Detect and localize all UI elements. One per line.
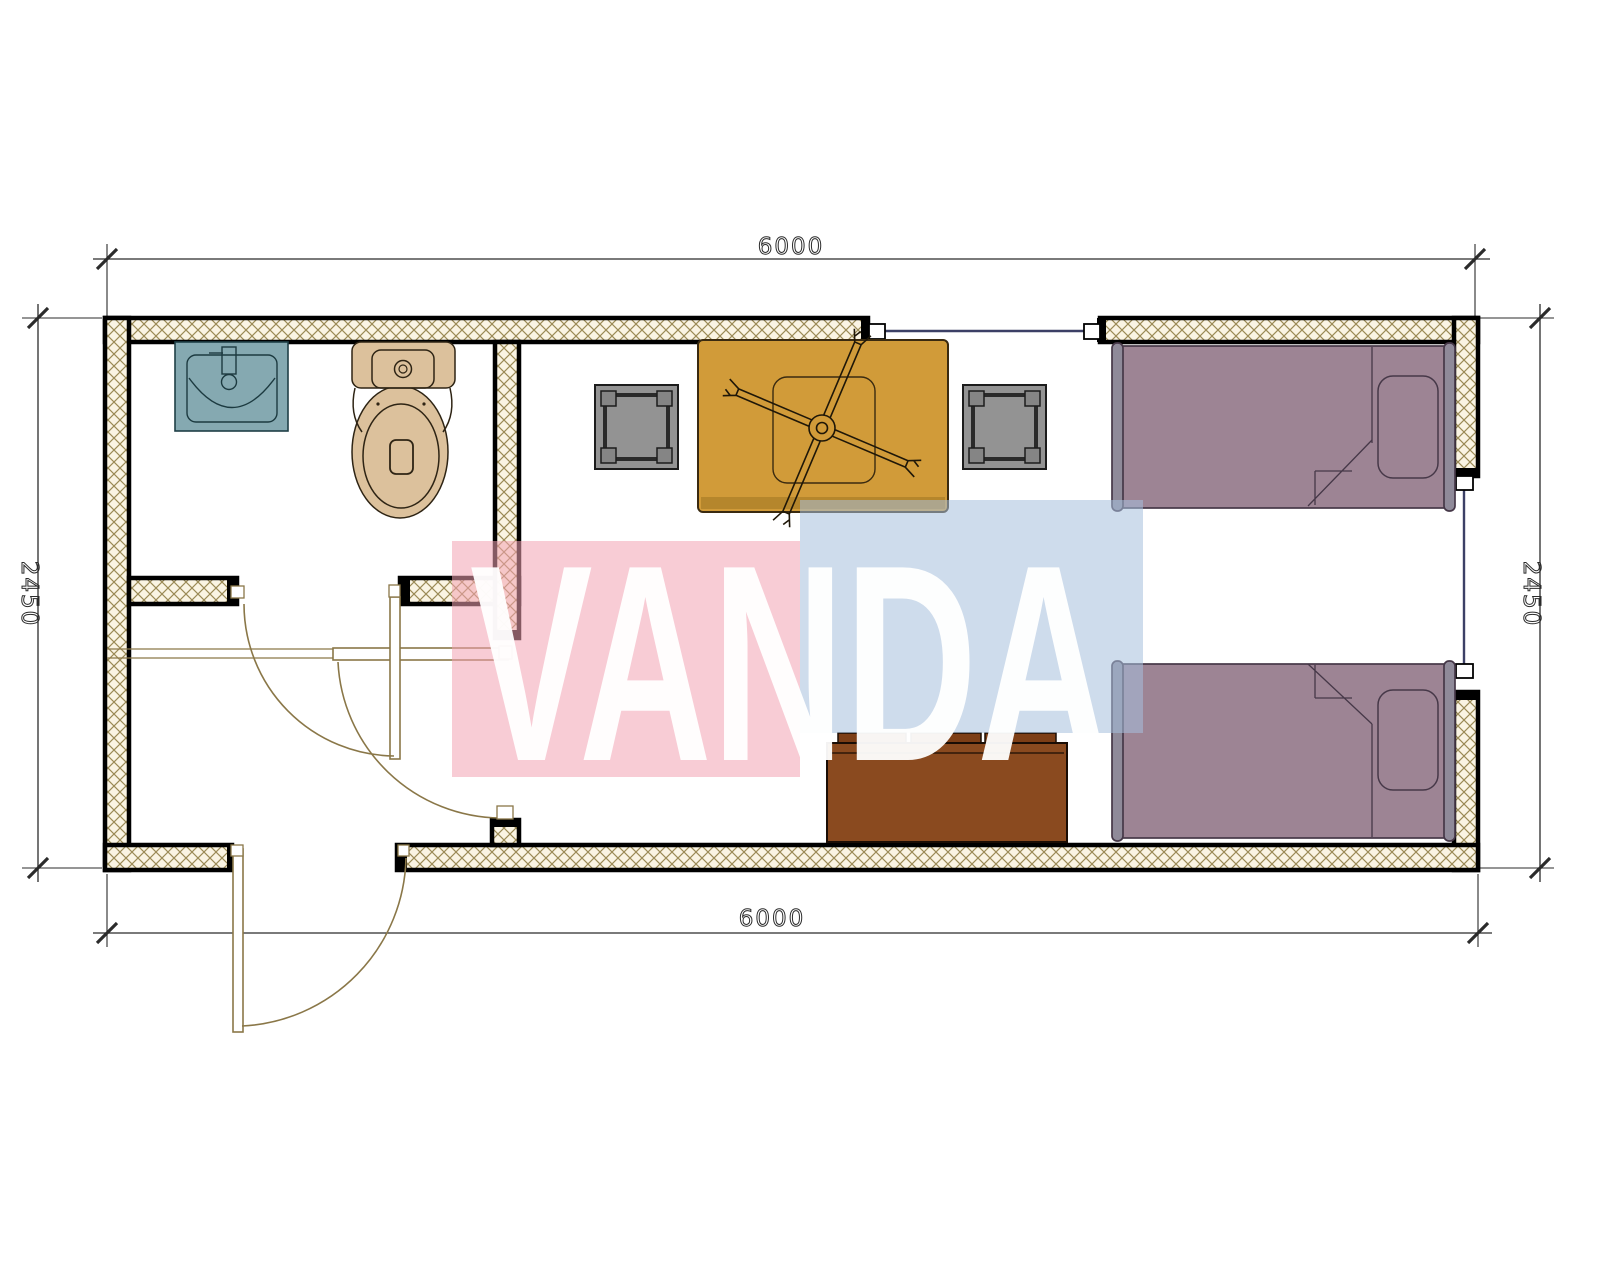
entrance-door-leaf [233,849,243,1032]
wall-bottom-main [397,845,1478,870]
window-top [869,324,1100,339]
door-jamb [389,585,400,597]
stool-leg [969,391,984,406]
floor-plan-drawing: 6000 6000 2450 2450 [0,0,1600,1280]
window-jamb [1456,664,1473,678]
floor-plan-page: 6000 6000 2450 2450 [0,0,1600,1280]
stool-leg [1025,448,1040,463]
table [698,329,948,527]
dimension-left: 2450 [16,304,102,882]
toilet-bowl [352,386,448,518]
seat-hinge-dot [422,402,425,405]
wall-left [105,318,129,870]
door-jamb [231,586,244,598]
dimension-label-right: 2450 [1518,561,1544,628]
bathroom-door-swing-arc [244,604,394,756]
sink [175,342,288,431]
seat-hinge-dot [376,402,379,405]
window-jamb [869,324,885,339]
watermark-text: VANDA [470,508,1110,820]
dimension-right: 2450 [1480,304,1554,882]
entrance-door-swing-arc [242,858,406,1026]
toilet [352,342,455,518]
watermark: VANDA [452,500,1143,820]
stool-right [963,385,1046,469]
wall-top-left-segment [105,318,868,342]
dimension-bottom: 6000 [93,874,1492,947]
bathroom-door-leaf [390,597,400,759]
wall-top-right-segment [1100,318,1478,342]
wall-cap [1454,468,1478,476]
dimension-label-bottom: 6000 [739,906,806,932]
dimension-top: 6000 [93,234,1490,316]
bed-mattress [1122,346,1447,508]
stool-left [595,385,678,469]
stool-leg [657,391,672,406]
window-right [1456,476,1473,678]
stool-leg [1025,391,1040,406]
bed-rail-foot [1112,343,1123,511]
wall-right-upper [1454,318,1478,476]
wall-cap [400,578,410,604]
dimension-label-top: 6000 [758,234,825,260]
bed-bottom [1112,661,1455,841]
bed-rail-head [1444,343,1455,511]
stool-leg [969,448,984,463]
wall-bathroom-south-left [129,578,237,604]
wall-cap [1454,692,1478,700]
window-jamb [1084,324,1100,339]
stool-leg [657,448,672,463]
door-jamb [398,845,409,856]
dimension-label-left: 2450 [16,561,42,628]
stool-leg [601,448,616,463]
bed-top [1112,343,1455,511]
window-jamb [1456,476,1473,490]
bed-rail-head [1444,661,1455,841]
wall-bottom-left-stub [105,845,232,870]
table-top [698,340,948,512]
stool-leg [601,391,616,406]
wall-cap [492,820,519,827]
door-jamb [231,845,243,856]
